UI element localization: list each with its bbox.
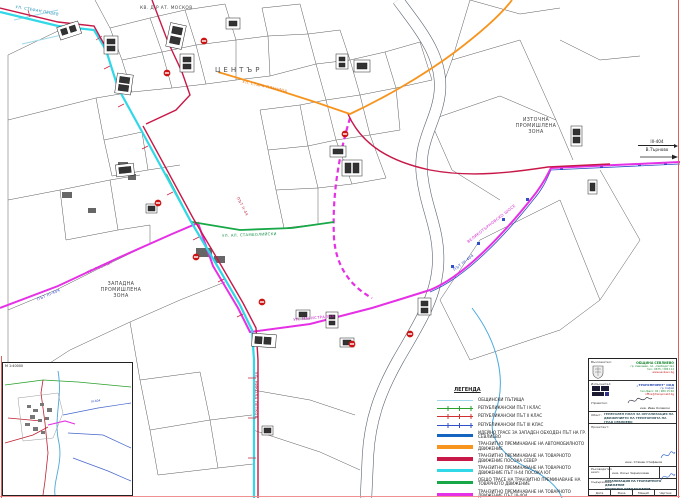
traffic-sign-boards [57,18,597,435]
buildings [62,162,225,263]
label-zone-west: ЗАПАДНА ПРОМИШЛЕНА ЗОНА [98,282,144,300]
client-contact-block: ОБЩИНА СЕВЛИЕВО гр. Севлиево, пл. „Свобо… [620,361,674,375]
manager-signature [627,396,653,405]
manager-name: инж. Иван Колевски [640,406,670,410]
legend-swatch-municipal [437,397,473,403]
legend-label: ТРАНЗИТНО ПРЕМИНАВАНЕ НА АВТОМОБИЛНОТО Д… [478,442,587,451]
destination-city: В.Търново [646,147,669,152]
legend-label: ТРАНЗИТНО ПРЕМИНАВАНЕ НА ТОВАРНОТО ДВИЖЕ… [478,466,587,475]
legend: ЛЕГЕНДА ОБЩИНСКИ ПЪТИЩА РЕПУБЛИКАНСКИ ПЪ… [437,387,587,498]
legend-label: ОБЩО ТРАСЕ НА ТРАНЗИТНО ПРЕМИНАВАНЕ НА Т… [478,478,587,487]
legend-swatch-class3 [437,422,473,428]
legend-swatch-freight-common [437,479,473,485]
legend-item: ОБЩИНСКИ ПЪТИЩА [437,397,587,403]
label-center: ЦЕНТЪР [215,66,262,74]
legend-item: ОБЩО ТРАСЕ НА ТРАНЗИТНО ПРЕМИНАВАНЕ НА Т… [437,478,587,487]
route-freight-404 [0,162,680,332]
legend-label: РЕПУБЛИКАНСКИ ПЪТ ІІІ КЛАС [478,423,543,428]
titleblock-contractor-row: Изпълнител: „ТРАНСПРОЕКТ" ООД гр. София … [589,381,676,412]
titleblock-object-row: Обект: ГЕНЕРАЛЕН ПЛАН ЗА ОРГАНИЗАЦИЯ НА … [589,412,676,424]
label-district-nw: КВ. Д-Р АТ. МОСКОВ [140,6,193,11]
object-label: Обект: [591,413,602,417]
route-unbuilt-dashed [334,118,372,298]
titleblock-content-row: Съдържание: ОРГАНИЗАЦИЯ НА ТРАНЗИТНОТО Д… [589,479,676,490]
sheet-border-left [1,356,2,498]
client-label: Възложител: [591,360,612,364]
legend-swatch-bypass [437,432,473,438]
legend-swatch-class2 [437,414,473,420]
destination-road-number: ІІІ-404 [650,139,663,144]
legend-swatch-class1 [437,405,473,411]
legend-item: ТРАНЗИТНО ПРЕМИНАВАНЕ НА АВТОМОБИЛНОТО Д… [437,442,587,451]
route-freight-common [166,174,334,262]
no-entry-sign-icons [155,38,414,348]
titleblock-client-row: Възложител: ОБЩИНА СЕВЛИЕВО гр. Севлиево… [589,359,676,381]
legend-swatch-auto-transit [437,444,473,450]
label-zone-east: ИЗТОЧНА ПРОМИШЛЕНА ЗОНА [510,118,562,136]
contractor-contact-block: „ТРАНСПРОЕКТ" ООД гр. София тел./факс: 0… [620,383,674,397]
label-street-nikola-petkov: УЛ. НИКОЛА ПЕТКОВ [254,372,259,419]
legend-item: ТРАНЗИТНО ПРЕМИНАВАНЕ НА ТОВАРНОТО ДВИЖЕ… [437,466,587,475]
direction-arrow-icon [638,145,676,146]
destination-note: ІІІ-404 В.Търново [638,139,676,152]
route-auto-transit [218,0,512,114]
lead-name: инж. Косьо Чернокожев [609,467,655,478]
title-block: Възложител: ОБЩИНА СЕВЛИЕВО гр. Севлиево… [588,358,677,496]
municipality-coat-of-arms [592,365,604,379]
inset-map-canvas [3,363,132,495]
legend-item: ИДЕЙНО ТРАСЕ ЗА ЗАПАДЕН ОБХОДЕН ПЪТ НА Г… [437,431,587,440]
inset-overview-map: М 1:40000 ІІІ-404 [2,362,133,496]
titleblock-designer-row: Проектант: инж. Стамен Стефанов [589,424,676,467]
legend-label: ИДЕЙНО ТРАСЕ ЗА ЗАПАДЕН ОБХОДЕН ПЪТ НА Г… [478,431,587,440]
lead-signature-cell [659,467,676,478]
river [366,0,440,498]
sheet-border-bottom [0,496,680,497]
legend-item: ТРАНЗИТНО ПРЕМИНАВАНЕ НА ТОВАРНОТО ДВИЖЕ… [437,454,587,463]
legend-label: ТРАНЗИТНО ПРЕМИНАВАНЕ НА ТОВАРНОТО ДВИЖЕ… [478,454,587,463]
legend-item: РЕПУБЛИКАНСКИ ПЪТ ІІ КЛАС [437,414,587,420]
legend-swatch-freight-south [437,468,473,474]
manager-label: Управител: [591,401,608,405]
legend-item: РЕПУБЛИКАНСКИ ПЪТ І КЛАС [437,405,587,411]
drawing-sheet: КВ. Д-Р АТ. МОСКОВ ЦЕНТЪР ЗАПАДНА ПРОМИШ… [0,0,680,498]
inset-scale-label: М 1:40000 [5,364,23,368]
client-web: www.sevlievo.bg [620,371,674,374]
designer-label: Проектант: [591,425,609,429]
lead-label: Ръководител екип: [591,468,609,475]
titleblock-lead-row: Ръководител екип: инж. Косьо Чернокожев [589,467,676,479]
road-iii-404 [430,155,680,292]
designer-name: инж. Стамен Стефанов [625,460,662,464]
legend-label: ОБЩИНСКИ ПЪТИЩА [478,398,524,403]
legend-label: РЕПУБЛИКАНСКИ ПЪТ І КЛАС [478,406,541,411]
designer-signature [660,450,676,460]
sheet-border-right [678,0,679,498]
legend-swatch-freight-north [437,456,473,462]
legend-label: РЕПУБЛИКАНСКИ ПЪТ ІІ КЛАС [478,414,542,419]
object-text: ГЕНЕРАЛЕН ПЛАН ЗА ОРГАНИЗАЦИЯ НА ДВИЖЕНИ… [604,413,674,424]
legend-item: РЕПУБЛИКАНСКИ ПЪТ ІІІ КЛАС [437,422,587,428]
legend-title: ЛЕГЕНДА [454,387,587,393]
contractor-logo [592,386,610,397]
